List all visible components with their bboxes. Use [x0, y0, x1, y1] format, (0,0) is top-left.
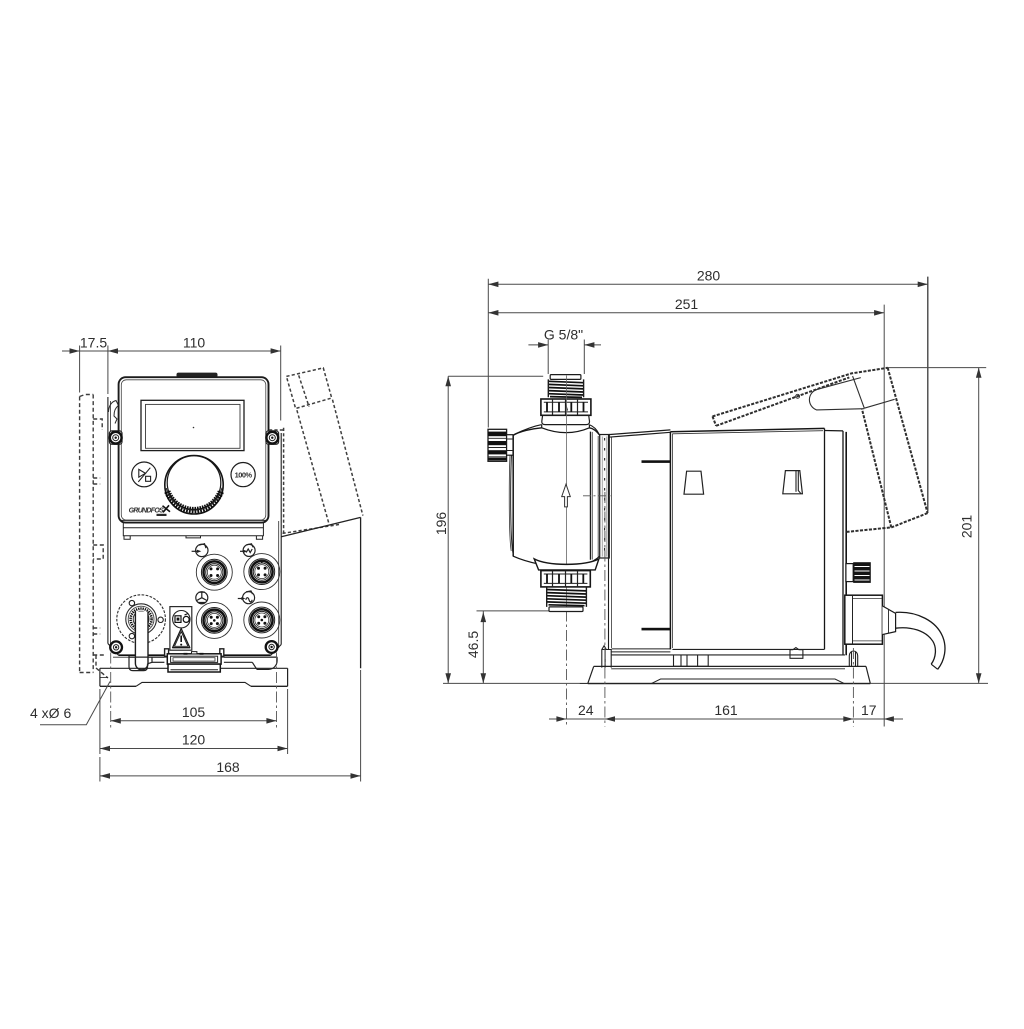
svg-text:17.5: 17.5 [80, 335, 107, 351]
svg-text:161: 161 [714, 702, 738, 718]
svg-text:196: 196 [433, 512, 449, 536]
svg-text:110: 110 [183, 335, 206, 351]
svg-text:G 5/8": G 5/8" [544, 326, 583, 342]
svg-text:100%: 100% [235, 471, 253, 480]
svg-text:251: 251 [675, 296, 699, 312]
svg-text:120: 120 [182, 732, 206, 748]
svg-text:168: 168 [216, 759, 240, 775]
svg-text:24: 24 [578, 702, 594, 718]
svg-text:17: 17 [861, 702, 877, 718]
svg-text:105: 105 [182, 704, 206, 720]
svg-text:GRUNDFOS: GRUNDFOS [129, 507, 164, 514]
svg-text:4 xØ 6: 4 xØ 6 [30, 705, 71, 721]
svg-text:46.5: 46.5 [465, 631, 481, 658]
svg-text:280: 280 [697, 267, 721, 283]
svg-text:201: 201 [959, 515, 975, 539]
